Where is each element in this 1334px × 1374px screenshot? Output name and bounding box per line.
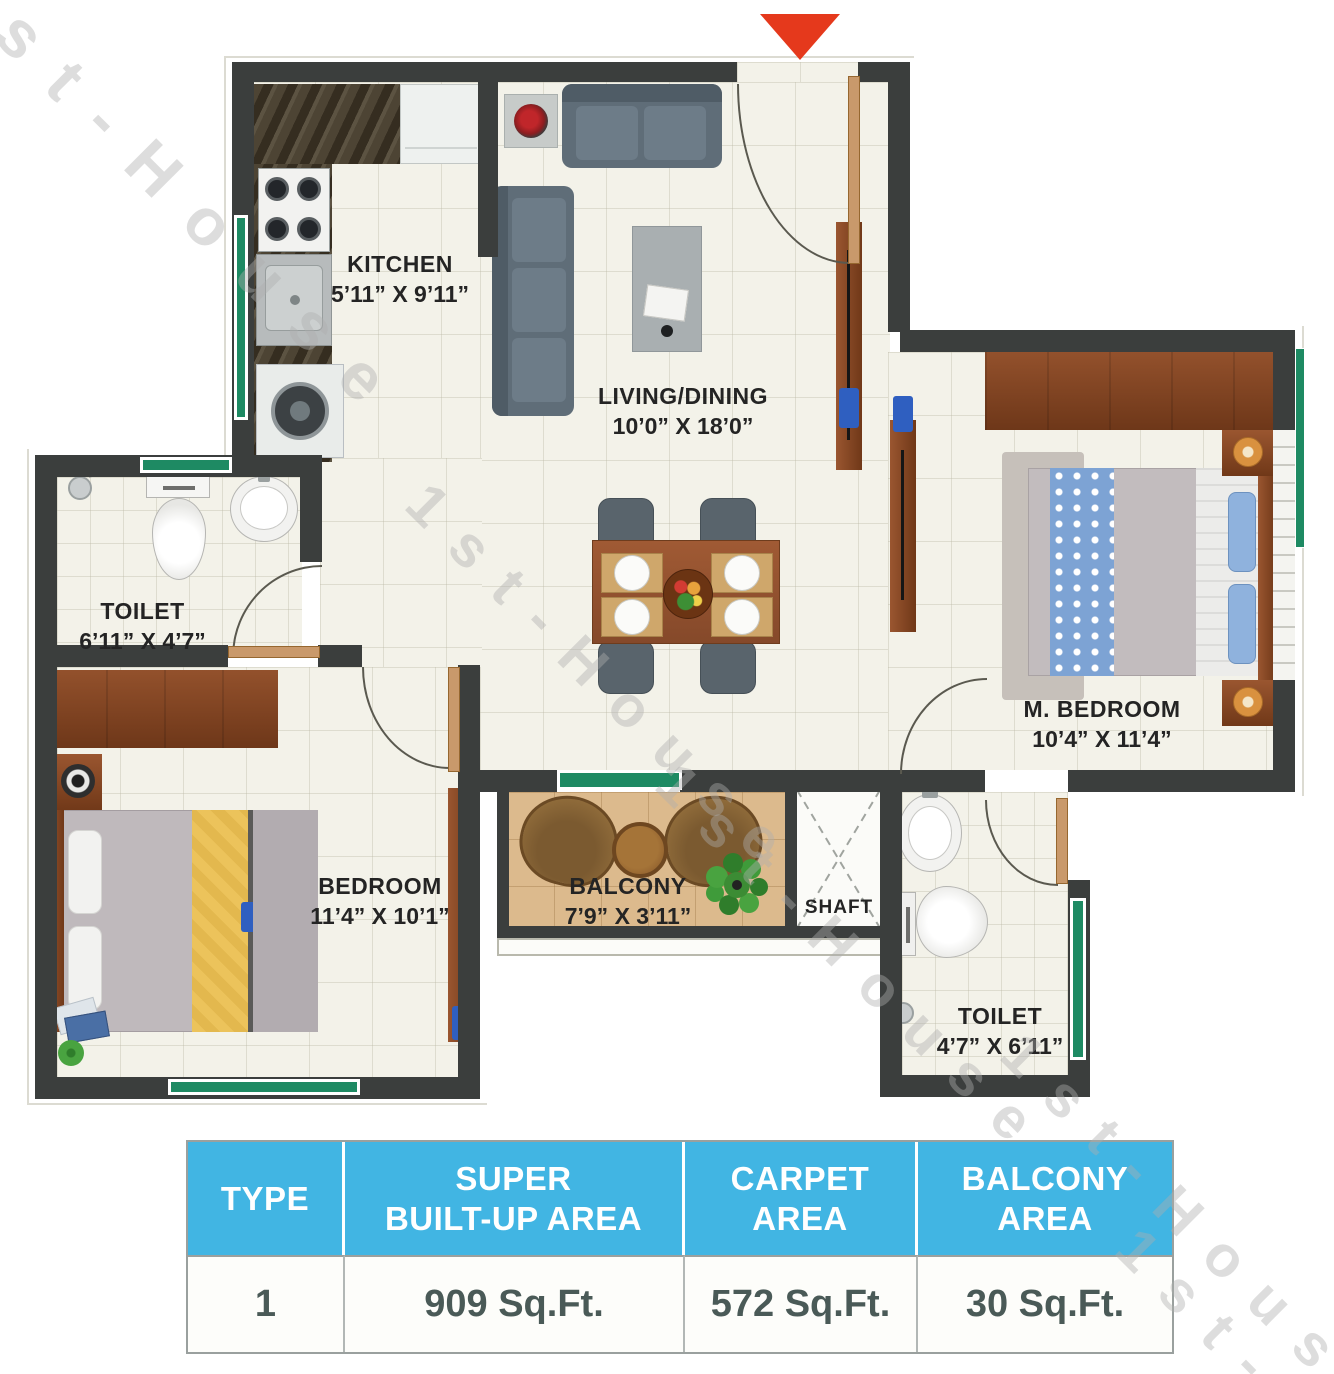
- shower-icon: [68, 476, 92, 500]
- bed-runner: [1050, 468, 1114, 676]
- room-dims: 6’11” X 4’7”: [60, 627, 225, 657]
- dinner-plate: [724, 599, 760, 635]
- wall: [300, 455, 322, 562]
- plaster-line: [224, 56, 226, 464]
- sofa-cushion: [512, 338, 566, 402]
- cell-carpet-value: 572 Sq.Ft.: [685, 1255, 918, 1352]
- sofa-backrest: [562, 84, 722, 102]
- area-table-row: 1 909 Sq.Ft. 572 Sq.Ft. 30 Sq.Ft.: [188, 1255, 1172, 1352]
- room-label-shaft: SHAFT: [796, 896, 882, 921]
- dinner-plate: [614, 555, 650, 591]
- refrigerator: [400, 84, 482, 164]
- wall: [318, 645, 362, 667]
- entry-threshold: [737, 62, 858, 82]
- wardrobe: [985, 352, 1283, 430]
- sink-faucet-icon: [290, 295, 300, 305]
- entry-door-leaf: [848, 76, 860, 264]
- sofa-cushion: [512, 198, 566, 262]
- plaster-line: [27, 449, 29, 1105]
- cell-super-builtup-value: 909 Sq.Ft.: [345, 1255, 685, 1352]
- bedroom-door-leaf: [448, 667, 460, 772]
- window: [168, 1079, 360, 1095]
- room-name: SHAFT: [796, 896, 882, 921]
- washer-drum-center: [290, 401, 310, 421]
- pillow: [1228, 492, 1256, 572]
- fruit-bowl: [663, 569, 713, 619]
- washbasin-inner: [240, 486, 288, 530]
- tank-button: [906, 907, 910, 943]
- plant-pot-center: [732, 880, 742, 890]
- stove-burner: [297, 217, 321, 241]
- sofa-cushion: [512, 268, 566, 332]
- entrance-arrow: [760, 14, 840, 60]
- room-name: M. BEDROOM: [997, 695, 1207, 725]
- washing-machine: [256, 364, 344, 458]
- room-label-balcony: BALCONY 7’9” X 3’11”: [538, 872, 718, 932]
- wall: [35, 455, 57, 1099]
- area-table-header: TYPE SUPER BUILT-UP AREA CARPET AREA BAL…: [188, 1142, 1172, 1255]
- toilet1-door-leaf: [228, 646, 320, 658]
- balcony-railing: [497, 938, 882, 956]
- window: [234, 215, 248, 420]
- room-name: TOILET: [60, 597, 225, 627]
- decor-blue: [893, 396, 913, 432]
- stove-burner: [297, 177, 321, 201]
- dining-table: [592, 540, 780, 644]
- window: [140, 457, 232, 473]
- area-table: TYPE SUPER BUILT-UP AREA CARPET AREA BAL…: [186, 1140, 1174, 1354]
- cell-balcony-value: 30 Sq.Ft.: [918, 1255, 1172, 1352]
- kitchen-counter: [254, 84, 400, 164]
- table-lamp: [1233, 437, 1263, 467]
- plant: [58, 1040, 84, 1066]
- sofa: [562, 84, 722, 168]
- room-label-m-bedroom: M. BEDROOM 10’4” X 11’4”: [997, 695, 1207, 755]
- wall: [888, 62, 910, 332]
- flower-decor: [514, 104, 548, 138]
- pillow: [68, 830, 102, 914]
- wall: [880, 785, 902, 1097]
- cup: [661, 325, 673, 337]
- room-label-bedroom: BEDROOM 11’4” X 10’1”: [292, 872, 468, 932]
- room-dims: 10’4” X 11’4”: [997, 725, 1207, 755]
- room-label-living-dining: LIVING/DINING 10’0” X 18’0”: [568, 382, 798, 442]
- pillow: [68, 926, 102, 1010]
- room-label-toilet-1: TOILET 6’11” X 4’7”: [60, 597, 225, 657]
- plant: [724, 872, 750, 898]
- coffee-table: [632, 226, 702, 352]
- table-lamp: [61, 764, 95, 798]
- col-carpet-area: CARPET AREA: [685, 1142, 918, 1255]
- sofa-cushion: [644, 106, 706, 160]
- room-dims: 10’0” X 18’0”: [568, 412, 798, 442]
- wall: [880, 1075, 1090, 1097]
- room-name: BALCONY: [538, 872, 718, 902]
- floor-plan-page: KITCHEN 5’11” X 9’11” LIVING/DINING 10’0…: [0, 0, 1334, 1374]
- dining-chair: [700, 640, 756, 694]
- panel-handle: [901, 450, 904, 600]
- decor-blue: [839, 388, 859, 428]
- room-name: TOILET: [914, 1002, 1086, 1032]
- room-dims: 11’4” X 10’1”: [292, 902, 468, 932]
- room-name: KITCHEN: [310, 250, 490, 280]
- room-name: BEDROOM: [292, 872, 468, 902]
- dinner-plate: [724, 555, 760, 591]
- window-glazing: [1273, 430, 1295, 680]
- sofa: [492, 186, 574, 416]
- balcony-table: [612, 822, 668, 878]
- col-balcony-area: BALCONY AREA: [918, 1142, 1172, 1255]
- toilet2-door-leaf: [1056, 798, 1068, 884]
- plaster-line: [27, 1103, 487, 1105]
- wardrobe: [48, 670, 278, 748]
- wall: [232, 62, 737, 82]
- window: [557, 770, 682, 790]
- room-label-toilet-2: TOILET 4’7” X 6’11”: [914, 1002, 1086, 1062]
- tank-button: [163, 486, 195, 490]
- room-dims: 4’7” X 6’11”: [914, 1032, 1086, 1062]
- sofa-cushion: [576, 106, 638, 160]
- stove-burner: [265, 177, 289, 201]
- corridor-floor: [320, 458, 482, 667]
- pillow: [1228, 584, 1256, 664]
- wall: [900, 330, 1295, 352]
- room-dims: 5’11” X 9’11”: [310, 280, 490, 310]
- room-name: LIVING/DINING: [568, 382, 798, 412]
- cell-type-value: 1: [188, 1255, 345, 1352]
- stove-burner: [265, 217, 289, 241]
- room-label-kitchen: KITCHEN 5’11” X 9’11”: [310, 250, 490, 310]
- table-lamp: [1233, 687, 1263, 717]
- fridge-handle: [405, 147, 477, 149]
- sliding-door-panel: [890, 420, 916, 632]
- dinner-plate: [614, 599, 650, 635]
- window: [1295, 348, 1305, 548]
- room-dims: 7’9” X 3’11”: [538, 902, 718, 932]
- col-type: TYPE: [188, 1142, 345, 1255]
- wall: [458, 665, 480, 1077]
- dining-chair: [598, 640, 654, 694]
- toilet-tank: [146, 476, 210, 498]
- washbasin-inner: [908, 806, 952, 860]
- magazine: [643, 284, 689, 322]
- wall: [478, 82, 498, 257]
- gas-stove: [258, 168, 330, 252]
- wall: [497, 785, 509, 938]
- wall: [1068, 770, 1295, 792]
- col-super-builtup-area: SUPER BUILT-UP AREA: [345, 1142, 685, 1255]
